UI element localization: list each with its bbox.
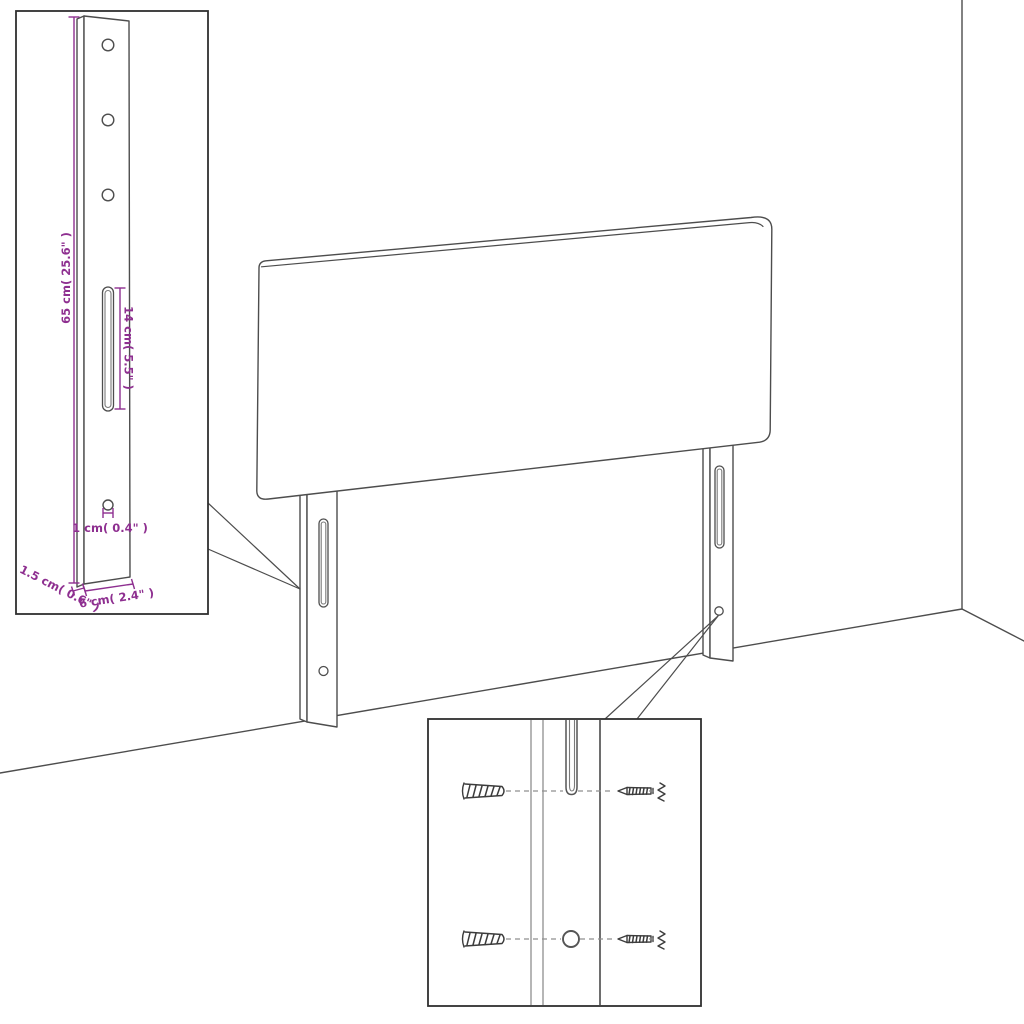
leg-left-side-face [300,485,307,722]
headboard-dimension-diagram: 65 cm( 25.6" ) 14 cm( 5.5" ) 1 cm( 0.4" … [0,0,1024,1024]
panel-outline [257,217,772,499]
inset-hardware-box [428,719,701,1006]
dim-slot-label: 14 cm( 5.5" ) [122,306,136,390]
dim-height-label: 65 cm( 25.6" ) [59,232,73,324]
inset-hardware-detail [428,719,701,1006]
floor-line-right [962,609,1024,641]
headboard-panel [257,217,772,499]
headboard-dimension-diagram-page: 65 cm( 25.6" ) 14 cm( 5.5" ) 1 cm( 0.4" … [0,0,1024,1024]
headboard-leg-right [703,443,733,661]
bracket-front-face [84,16,130,584]
headboard-leg-left [300,483,337,727]
bracket-side-face [77,16,84,587]
callout-line [208,549,300,589]
callout-wedge-left [208,503,300,589]
inset-bracket-detail: 65 cm( 25.6" ) 14 cm( 5.5" ) 1 cm( 0.4" … [16,11,208,615]
callout-line [208,503,300,589]
callout-line [637,616,718,719]
dim-hole-label: 1 cm( 0.4" ) [72,521,148,535]
